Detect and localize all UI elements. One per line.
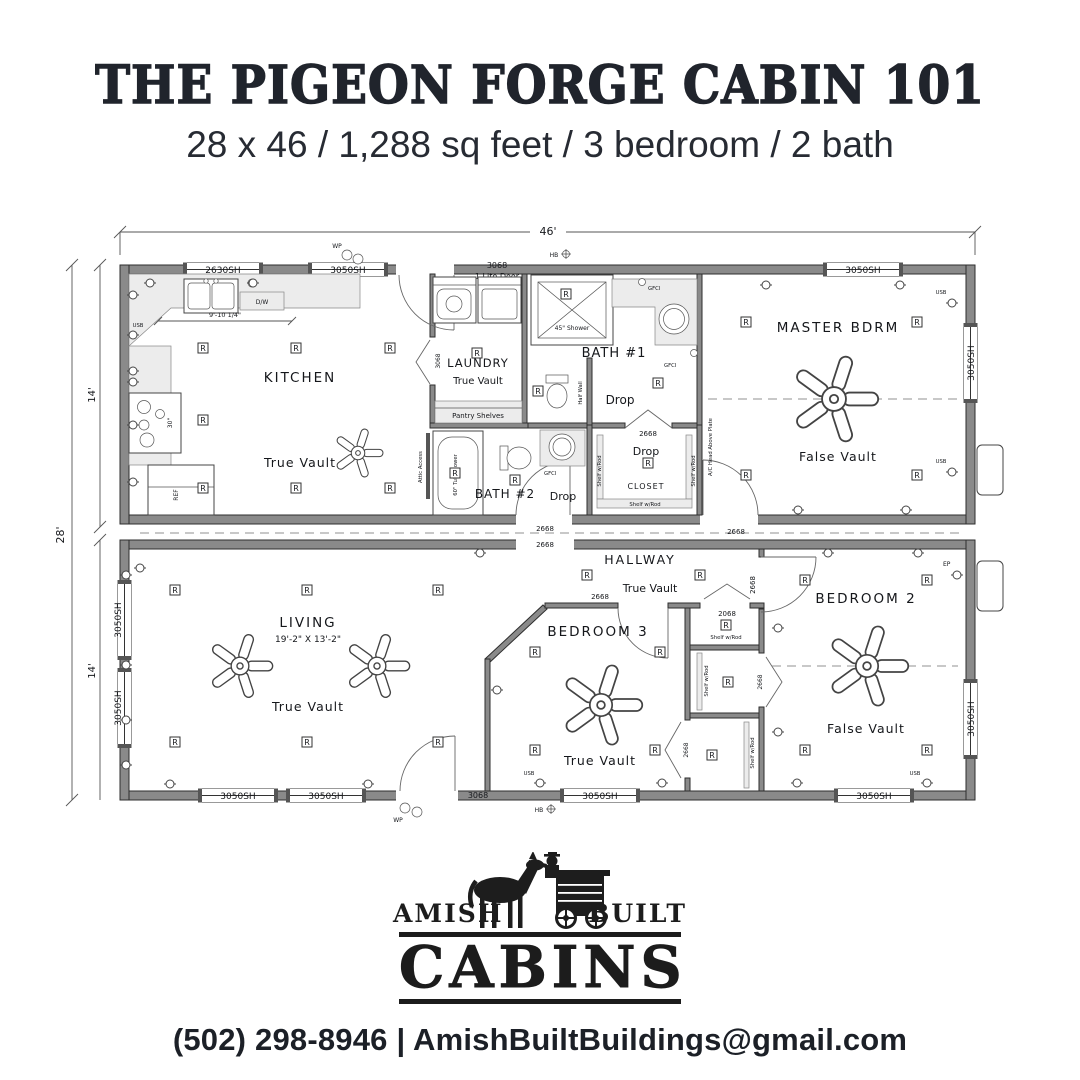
- drop-label: Drop: [633, 445, 659, 458]
- window-label: 3050SH: [967, 701, 977, 736]
- door-label: 2668: [749, 576, 757, 594]
- usb-label: USB: [524, 771, 535, 777]
- bath1-label: BATH #1: [582, 346, 647, 361]
- bedroom2: BEDROOM 2 False Vault EP: [772, 561, 958, 736]
- kitchen: D/W 9'-10 1/4" 30" REF KITCHEN True Vaul…: [129, 274, 383, 515]
- hallway-label: HALLWAY: [604, 552, 676, 567]
- dishwasher: D/W: [240, 292, 284, 310]
- bedroom2-label: BEDROOM 2: [815, 591, 916, 607]
- ac-head-label: A/C Head Above Plate: [708, 418, 714, 476]
- gfci-label: GFCI: [648, 286, 661, 292]
- washer: [433, 277, 476, 323]
- usb-label: USB: [936, 459, 947, 465]
- hb-label: HB: [550, 252, 559, 259]
- ceiling-fan: [830, 625, 908, 707]
- wp-label: WP: [393, 817, 403, 824]
- bath1: 45" Shower GFCI GFCI BATH #1 Drop Half W…: [531, 275, 698, 408]
- dim-half-lower: 14': [87, 663, 98, 678]
- living-room: LIVING 19'-2" X 13'-2" True Vault: [211, 615, 410, 714]
- kitchen-vault-label: True Vault: [263, 455, 336, 470]
- window-label: 3050SH: [967, 345, 977, 380]
- pantry-shelves: Pantry Shelves: [435, 401, 522, 423]
- closet-label: CLOSET: [627, 482, 664, 491]
- range-label: 30": [167, 418, 174, 429]
- hall-closet: Drop CLOSET Shelf w/Rod Shelf w/Rod Shel…: [597, 435, 697, 508]
- phone-number: (502) 298-8946: [173, 1022, 388, 1057]
- bedroom3-label: BEDROOM 3: [547, 624, 648, 640]
- bath2-label: BATH #2: [475, 487, 535, 501]
- logo-cabins-text: CABINS: [399, 938, 681, 997]
- hose-bib-top: HB: [550, 249, 571, 259]
- master-bedroom: MASTER BDRM False Vault A/C Head Above P…: [708, 320, 958, 476]
- contact-divider: |: [396, 1022, 405, 1057]
- door-label: 2668: [757, 674, 764, 689]
- pantry-label: Pantry Shelves: [452, 412, 504, 420]
- half-wall-label: Half Wall: [578, 381, 584, 404]
- laundry-vault-label: True Vault: [452, 376, 503, 387]
- shelf-label: Shelf w/Rod: [629, 502, 660, 508]
- ceiling-fan: [564, 664, 642, 746]
- master-vault-label: False Vault: [799, 449, 877, 464]
- living-label: LIVING: [279, 615, 336, 631]
- window-label: 3050SH: [114, 602, 124, 637]
- hb-label: HB: [535, 807, 544, 814]
- refrigerator-label: REF: [173, 489, 180, 501]
- door-label: 2668: [536, 541, 554, 549]
- usb-label: USB: [936, 290, 947, 296]
- door-label: 2668: [683, 742, 690, 757]
- shower-label: 45" Shower: [555, 325, 590, 332]
- attic-label: Attic Access: [418, 451, 424, 483]
- door-label: 3068: [435, 353, 442, 368]
- shelf-label: Shelf w/Rod: [597, 455, 603, 486]
- porch-light-top: WP: [332, 243, 363, 264]
- drop-label: Drop: [606, 393, 635, 407]
- email-address: AmishBuiltBuildings@gmail.com: [413, 1022, 907, 1057]
- hallway-vault-label: True Vault: [622, 582, 678, 595]
- kitchen-sink: [184, 279, 238, 313]
- usb-label: USB: [910, 771, 921, 777]
- exterior-equipment: [977, 445, 1003, 611]
- door-label: 2668: [639, 430, 657, 438]
- shelf-label: Shelf w/Rod: [750, 737, 756, 768]
- hose-bib-bottom: HB: [535, 804, 556, 814]
- dryer: [478, 277, 521, 323]
- door-label: 3068: [468, 791, 488, 800]
- bath2: 60" Tub/Shower GFCI BATH #2 Drop Attic A…: [418, 430, 585, 515]
- living-size-label: 19'-2" X 13'-2": [275, 635, 341, 645]
- hallway: HALLWAY True Vault: [604, 552, 678, 595]
- page-title: THE PIGEON FORGE CABIN 101: [0, 55, 1080, 117]
- door-label: 2068: [718, 610, 736, 618]
- dim-width: 46': [539, 225, 556, 238]
- shelf-label: Shelf w/Rod: [691, 455, 697, 486]
- ceiling-fan: [336, 428, 383, 478]
- shelf-label: Shelf w/Rod: [704, 665, 710, 696]
- gfci-label: GFCI: [544, 471, 557, 477]
- bedroom3-vault-label: True Vault: [563, 753, 636, 768]
- gfci-label: GFCI: [664, 363, 677, 369]
- bedroom3: BEDROOM 3 True Vault: [547, 624, 648, 768]
- wp-label: WP: [332, 243, 342, 250]
- brand-logo: AMISH: [399, 856, 681, 1005]
- dim-height: 28': [54, 526, 67, 543]
- bath1-toilet: [546, 375, 568, 408]
- door-label: 2668: [536, 525, 554, 533]
- window-label: 3050SH: [220, 792, 255, 802]
- window-label: 3050SH: [308, 792, 343, 802]
- attic-access: Attic Access: [418, 433, 430, 499]
- ceiling-fan: [211, 633, 273, 698]
- bath2-toilet: [500, 446, 531, 470]
- ceiling-fan: [794, 355, 878, 443]
- door-label: 2668: [591, 593, 609, 601]
- contact-info: (502) 298-8946 | AmishBuiltBuildings@gma…: [0, 1022, 1080, 1058]
- logo-built-text: BUILT: [588, 899, 687, 928]
- door-label: 2668: [727, 528, 745, 536]
- ep-label: EP: [943, 561, 951, 568]
- window-label: 3050SH: [845, 266, 880, 276]
- closet-bank: Shelf w/Rod Shelf w/Rod Shelf w/Rod: [697, 635, 756, 788]
- counter-dim-label: 9'-10 1/4": [209, 311, 241, 319]
- window-label: 3050SH: [582, 792, 617, 802]
- kitchen-label: KITCHEN: [264, 370, 337, 386]
- window-label: 3050SH: [856, 792, 891, 802]
- master-label: MASTER BDRM: [777, 320, 900, 336]
- porch-light-bottom: WP: [393, 803, 422, 824]
- counter-dimension: 9'-10 1/4": [154, 311, 296, 325]
- door-label: 3068: [487, 261, 507, 270]
- bedroom2-vault-label: False Vault: [827, 721, 905, 736]
- page-subtitle: 28 x 46 / 1,288 sq feet / 3 bedroom / 2 …: [0, 124, 1080, 166]
- shower: 45" Shower: [531, 275, 613, 345]
- ceiling-fan: [348, 633, 410, 698]
- living-vault-label: True Vault: [271, 699, 344, 714]
- dishwasher-label: D/W: [256, 299, 269, 306]
- floor-plan: R 46: [0, 195, 1080, 840]
- shelf-label: Shelf w/Rod: [710, 635, 741, 641]
- usb-label: USB: [133, 323, 144, 329]
- drop-label: Drop: [550, 490, 576, 503]
- dim-half-upper: 14': [87, 387, 98, 402]
